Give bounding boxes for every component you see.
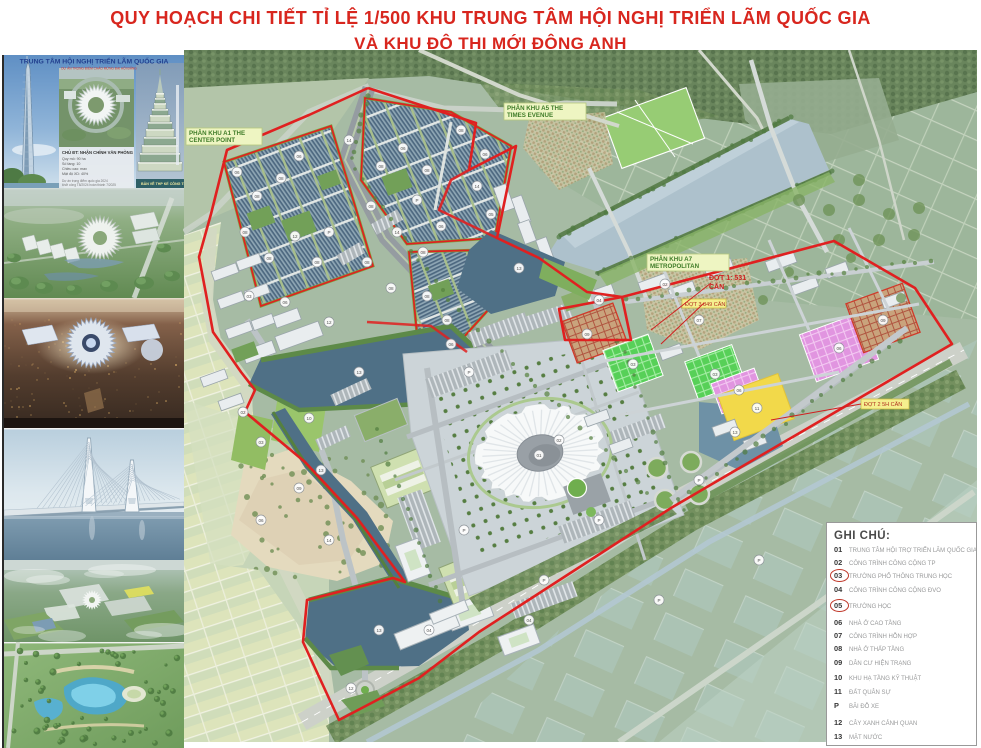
svg-text:P: P: [542, 578, 545, 583]
svg-text:06: 06: [258, 518, 264, 523]
svg-text:03: 03: [630, 362, 636, 367]
svg-text:14: 14: [326, 538, 332, 543]
svg-text:02: 02: [240, 410, 246, 415]
svg-text:09: 09: [880, 318, 886, 323]
svg-text:13: 13: [516, 266, 522, 271]
svg-text:P: P: [462, 528, 465, 533]
svg-text:11: 11: [755, 406, 760, 411]
svg-text:08: 08: [378, 164, 384, 169]
svg-text:PHÂN KHU A7: PHÂN KHU A7: [650, 256, 693, 263]
svg-text:14: 14: [474, 184, 480, 189]
svg-text:06: 06: [400, 146, 406, 151]
svg-text:12: 12: [348, 686, 354, 691]
svg-text:08: 08: [254, 194, 260, 199]
svg-text:06: 06: [234, 170, 240, 175]
svg-text:DỰ ÁN TRỌNG ĐIỂM CHÀO MỪNG ĐẠI: DỰ ÁN TRỌNG ĐIỂM CHÀO MỪNG ĐẠI HỘI ĐẢNG: [61, 66, 137, 71]
svg-text:P: P: [327, 230, 330, 235]
svg-text:08: 08: [266, 256, 272, 261]
svg-text:CHỦ ĐT: NHẬN CHÍNH VĂN PHÒNG: CHỦ ĐT: NHẬN CHÍNH VĂN PHÒNG: [62, 150, 133, 155]
svg-text:08: 08: [420, 250, 426, 255]
svg-text:CĂN: CĂN: [709, 282, 724, 291]
svg-text:P: P: [657, 598, 660, 603]
svg-text:09: 09: [584, 332, 590, 337]
svg-text:06: 06: [836, 346, 842, 351]
svg-text:TIMES EVENUE: TIMES EVENUE: [507, 112, 553, 119]
svg-text:ĐỢT 1: 531: ĐỢT 1: 531: [709, 275, 746, 282]
svg-text:06: 06: [482, 152, 488, 157]
svg-text:07: 07: [696, 318, 702, 323]
svg-text:10: 10: [306, 416, 312, 421]
svg-text:METROPOLITAN: METROPOLITAN: [650, 263, 700, 270]
svg-text:Mật độ XD: 40%: Mật độ XD: 40%: [62, 172, 89, 176]
svg-text:08: 08: [242, 230, 248, 235]
svg-text:08: 08: [278, 176, 284, 181]
svg-text:P: P: [467, 370, 470, 375]
svg-text:Số tầng: 10: Số tầng: 10: [62, 162, 80, 166]
svg-text:08: 08: [444, 318, 450, 323]
svg-text:13: 13: [376, 628, 382, 633]
svg-text:08: 08: [368, 204, 374, 209]
svg-text:Chiều cao: max: Chiều cao: max: [62, 167, 87, 171]
svg-text:Quy mô: 90 ha: Quy mô: 90 ha: [62, 157, 86, 161]
svg-text:PHÂN KHU A1 THE: PHÂN KHU A1 THE: [189, 130, 245, 137]
svg-text:06: 06: [736, 388, 742, 393]
svg-text:BẢN VẼ THP KẾ CÔNG TRÌNH: BẢN VẼ THP KẾ CÔNG TRÌNH: [141, 181, 184, 186]
svg-text:03: 03: [712, 372, 718, 377]
svg-text:03: 03: [246, 294, 252, 299]
svg-text:04: 04: [426, 628, 432, 633]
svg-text:ĐỢT 3 849 CĂN: ĐỢT 3 849 CĂN: [685, 301, 725, 308]
svg-text:13: 13: [318, 468, 324, 473]
svg-text:08: 08: [364, 260, 370, 265]
svg-text:12: 12: [292, 234, 298, 239]
svg-text:06: 06: [296, 154, 302, 159]
svg-text:13: 13: [356, 370, 362, 375]
svg-text:09: 09: [296, 486, 302, 491]
svg-text:P: P: [697, 478, 700, 483]
svg-text:ĐỢT 2 5H CĂN: ĐỢT 2 5H CĂN: [864, 401, 902, 408]
svg-text:04: 04: [526, 618, 532, 623]
svg-text:CENTER POINT: CENTER POINT: [189, 137, 235, 144]
svg-text:06: 06: [448, 342, 454, 347]
svg-text:08: 08: [424, 168, 430, 173]
svg-text:08: 08: [314, 260, 320, 265]
svg-text:13: 13: [732, 430, 738, 435]
svg-text:05: 05: [488, 212, 494, 217]
svg-text:P: P: [597, 518, 600, 523]
svg-text:06: 06: [282, 300, 288, 305]
svg-text:01: 01: [536, 453, 542, 458]
svg-text:02: 02: [662, 282, 668, 287]
svg-text:06: 06: [438, 224, 444, 229]
svg-text:03: 03: [258, 440, 264, 445]
svg-text:P: P: [415, 198, 418, 203]
svg-text:08: 08: [388, 286, 394, 291]
svg-text:P: P: [757, 558, 760, 563]
svg-text:12: 12: [326, 320, 332, 325]
svg-text:14: 14: [394, 230, 400, 235]
svg-text:04: 04: [596, 298, 602, 303]
svg-text:08: 08: [458, 128, 464, 133]
svg-text:08: 08: [424, 294, 430, 299]
svg-text:PHÂN KHU A5 THE: PHÂN KHU A5 THE: [507, 105, 563, 112]
svg-text:14: 14: [346, 138, 352, 143]
svg-text:khởi công T8/2024 hoàn thành 7: khởi công T8/2024 hoàn thành 7/2025: [62, 183, 116, 187]
svg-text:02: 02: [556, 438, 562, 443]
